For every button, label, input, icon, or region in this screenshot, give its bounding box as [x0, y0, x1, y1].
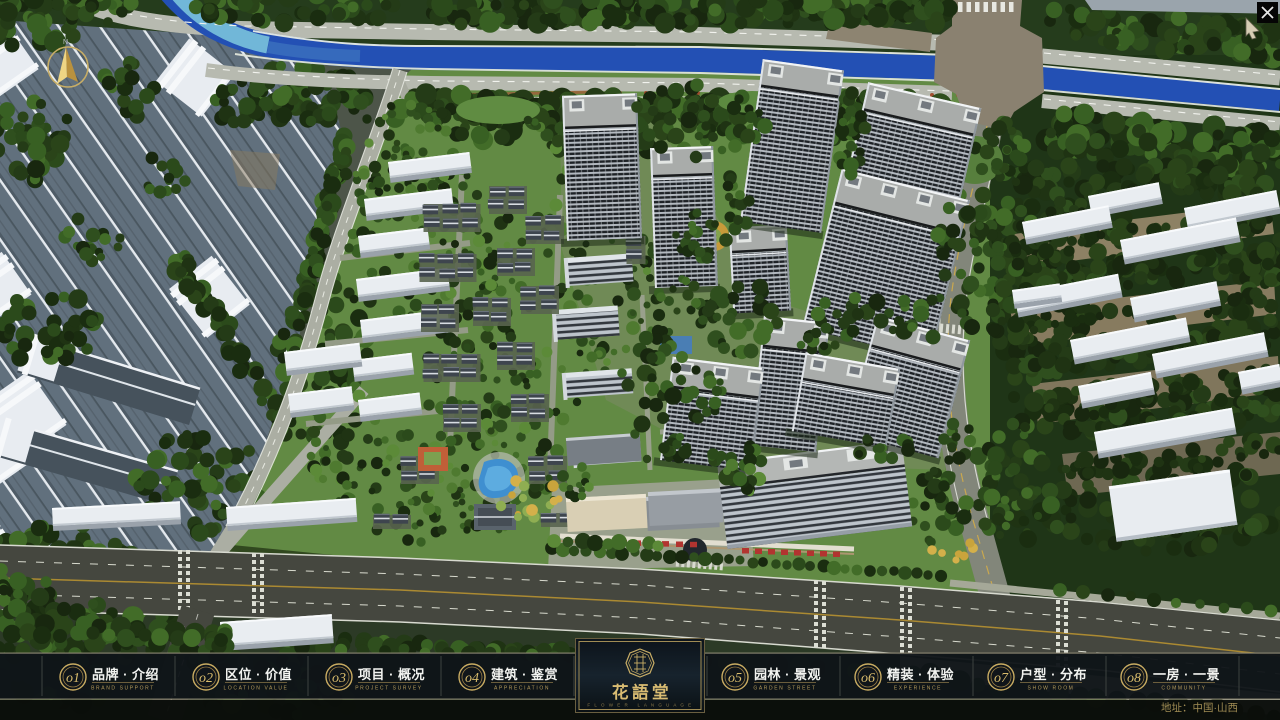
- svg-text:o7: o7: [994, 671, 1009, 686]
- svg-text:精装 · 体验: 精装 · 体验: [887, 667, 955, 682]
- svg-text:户型 · 分布: 户型 · 分布: [1020, 667, 1087, 682]
- svg-text:o3: o3: [332, 671, 346, 686]
- svg-text:花語堂: 花語堂: [612, 682, 672, 702]
- svg-text:o5: o5: [728, 671, 742, 686]
- svg-text:N: N: [63, 39, 68, 46]
- svg-text:EXPERIENCE: EXPERIENCE: [894, 686, 942, 692]
- svg-text:LOCATION VALUE: LOCATION VALUE: [223, 686, 288, 692]
- svg-text:BRAND SUPPORT: BRAND SUPPORT: [91, 686, 155, 692]
- svg-text:项目 · 概况: 项目 · 概况: [358, 667, 425, 682]
- svg-text:地址：中国·山西: 地址：中国·山西: [1161, 701, 1238, 714]
- svg-text:APPRECIATION: APPRECIATION: [494, 686, 550, 692]
- svg-text:COMMUNITY: COMMUNITY: [1161, 686, 1206, 692]
- svg-text:PROJECT SURVEY: PROJECT SURVEY: [355, 686, 423, 692]
- svg-text:GARDEN STREET: GARDEN STREET: [753, 686, 816, 692]
- svg-text:一房 · 一景: 一房 · 一景: [1153, 667, 1220, 682]
- svg-text:区位 · 价值: 区位 · 价值: [225, 667, 292, 682]
- svg-text:F L O W E R L A N G U A G E: F L O W E R L A N G U A G E: [587, 703, 692, 708]
- svg-text:SHOW ROOM: SHOW ROOM: [1028, 686, 1075, 692]
- svg-text:o1: o1: [66, 671, 80, 686]
- svg-text:o6: o6: [861, 671, 875, 686]
- svg-text:o2: o2: [199, 671, 213, 686]
- svg-text:o8: o8: [1127, 671, 1141, 686]
- svg-text:o4: o4: [465, 671, 479, 686]
- svg-text:园林 · 景观: 园林 · 景观: [754, 667, 821, 682]
- svg-text:品牌 · 介绍: 品牌 · 介绍: [92, 667, 159, 682]
- svg-text:建筑 · 鉴赏: 建筑 · 鉴赏: [491, 667, 558, 682]
